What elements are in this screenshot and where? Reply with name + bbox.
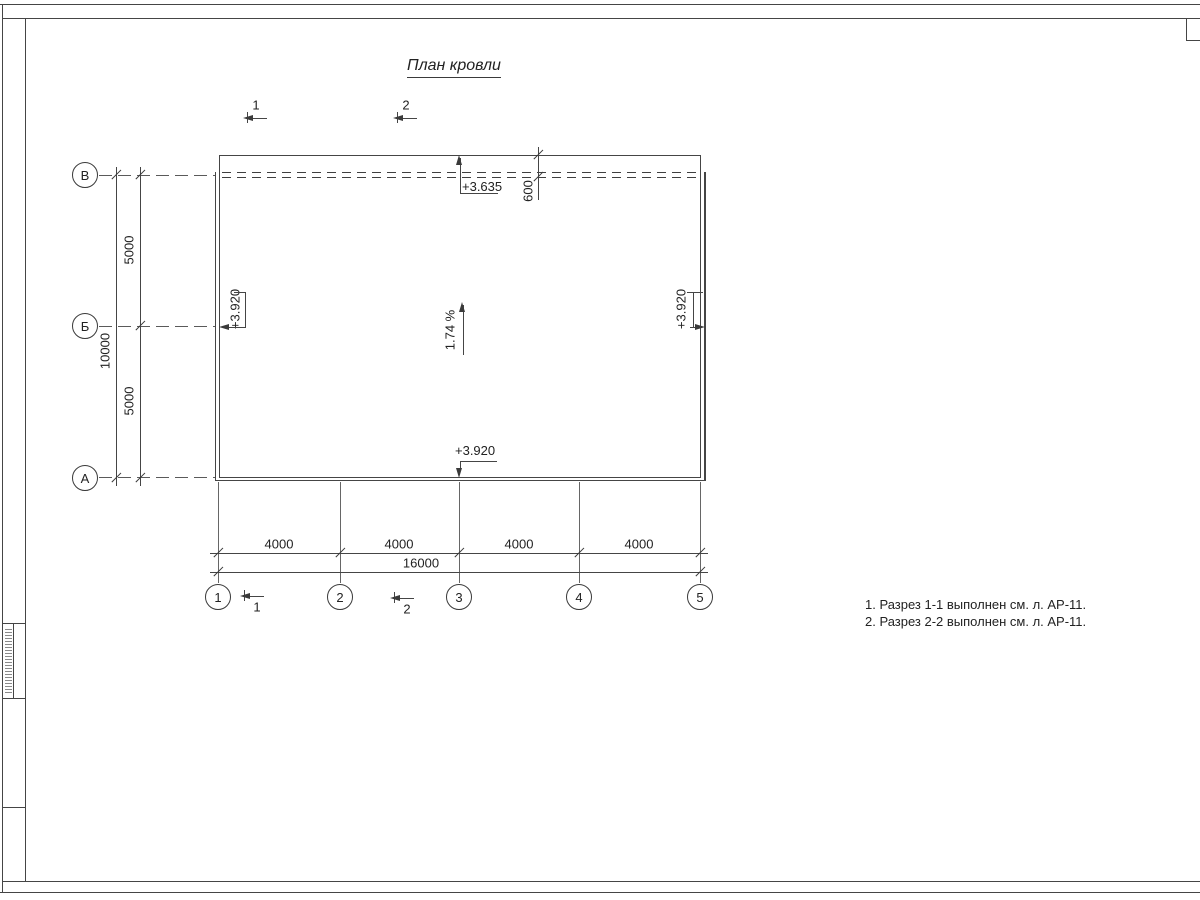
elevation-bottom-arrow-icon — [456, 468, 462, 478]
axis-label: 2 — [336, 590, 343, 605]
axis-bubble-col-1: 1 — [205, 584, 231, 610]
section-mark-bottom-1-label: 1 — [253, 600, 260, 615]
section-mark-top-2-label: 2 — [402, 98, 409, 113]
section-mark-top-1-label: 1 — [252, 98, 259, 113]
elevation-value-left: +3.920 — [228, 289, 243, 329]
section-mark-top-2-arrow-icon — [393, 115, 403, 121]
frame-outer-bottom — [0, 892, 1200, 893]
axis-line-col-5 — [700, 482, 701, 583]
dim-line-left-overall — [116, 167, 117, 486]
axis-line-col-4 — [579, 482, 580, 583]
axis-label: 4 — [575, 590, 582, 605]
dim-value-left-segment-1: 5000 — [122, 236, 137, 265]
elevation-left-arrow-icon — [219, 324, 229, 330]
dim-value-bottom-segment-2: 4000 — [385, 537, 414, 552]
slope-value: 1.74 % — [443, 310, 458, 350]
elevation-value-bottom: +3.920 — [455, 443, 495, 458]
parapet-left-outer — [215, 172, 217, 481]
axis-bubble-row-v: В — [72, 162, 98, 188]
frame-outer-left — [2, 4, 3, 893]
dim-value-bottom-segment-1: 4000 — [265, 537, 294, 552]
slope-arrow-icon — [459, 302, 465, 312]
section-mark-bottom-2-label: 2 — [403, 602, 410, 617]
axis-bubble-row-a: А — [72, 465, 98, 491]
elevation-value-right: +3.920 — [674, 289, 689, 329]
section-mark-bottom-2-arrow-icon — [390, 595, 400, 601]
elevation-right-end-tick — [687, 292, 703, 293]
roof-edge-left-inner — [219, 155, 220, 478]
dim-value-left-segment-2: 5000 — [122, 387, 137, 416]
elevation-value-top: +3.635 — [462, 179, 502, 194]
stamp-illegible-text — [5, 627, 12, 693]
frame-inner-bottom — [2, 881, 1200, 882]
axis-label: 1 — [214, 590, 221, 605]
slope-arrow-line — [463, 305, 464, 355]
axis-bubble-col-5: 5 — [687, 584, 713, 610]
dim-value-left-overall: 10000 — [98, 333, 113, 369]
axis-bubble-col-3: 3 — [446, 584, 472, 610]
elevation-bottom-shelf — [460, 461, 497, 462]
elevation-left-shelf — [245, 292, 246, 327]
axis-line-col-3 — [459, 482, 460, 583]
corner-box-bottom — [1186, 40, 1200, 41]
stamp-divider-2 — [2, 698, 25, 699]
axis-label: Б — [81, 319, 90, 334]
axis-label: А — [81, 471, 90, 486]
axis-label: 5 — [696, 590, 703, 605]
frame-outer-top — [0, 4, 1200, 5]
page-title: План кровли — [407, 57, 501, 78]
dim-value-parapet-offset: 600 — [521, 180, 536, 202]
axis-bubble-row-b: Б — [72, 313, 98, 339]
roof-edge-right-inner — [700, 155, 701, 478]
notes-block: 1. Разрез 1-1 выполнен см. л. АР-11. 2. … — [865, 597, 1086, 630]
dim-value-bottom-overall: 16000 — [403, 556, 439, 571]
section-mark-top-1-arrow-icon — [243, 115, 253, 121]
dim-line-bottom-overall — [210, 572, 708, 573]
dim-value-bottom-segment-4: 4000 — [625, 537, 654, 552]
axis-bubble-col-4: 4 — [566, 584, 592, 610]
section-mark-bottom-1-arrow-icon — [240, 593, 250, 599]
note-line-1: 1. Разрез 1-1 выполнен см. л. АР-11. — [865, 597, 1086, 614]
note-line-2: 2. Разрез 2-2 выполнен см. л. АР-11. — [865, 614, 1086, 631]
axis-line-col-1 — [218, 482, 219, 583]
drawing-sheet: План кровли В Б А 1 2 3 4 5 10000 5000 5… — [0, 0, 1200, 900]
axis-label: В — [81, 168, 90, 183]
stamp-inner-divider — [13, 623, 14, 698]
elevation-top-arrow-icon — [456, 155, 462, 165]
parapet-bottom-outer — [215, 480, 706, 482]
corner-box-left — [1186, 18, 1187, 41]
stamp-divider-3 — [2, 807, 25, 808]
axis-line-col-2 — [340, 482, 341, 583]
axis-bubble-col-2: 2 — [327, 584, 353, 610]
elevation-right-shelf — [693, 292, 694, 327]
dim-value-bottom-segment-3: 4000 — [505, 537, 534, 552]
frame-inner-left — [25, 18, 26, 882]
frame-inner-top — [2, 18, 1200, 19]
axis-label: 3 — [455, 590, 462, 605]
elevation-right-arrow-icon — [695, 324, 705, 330]
